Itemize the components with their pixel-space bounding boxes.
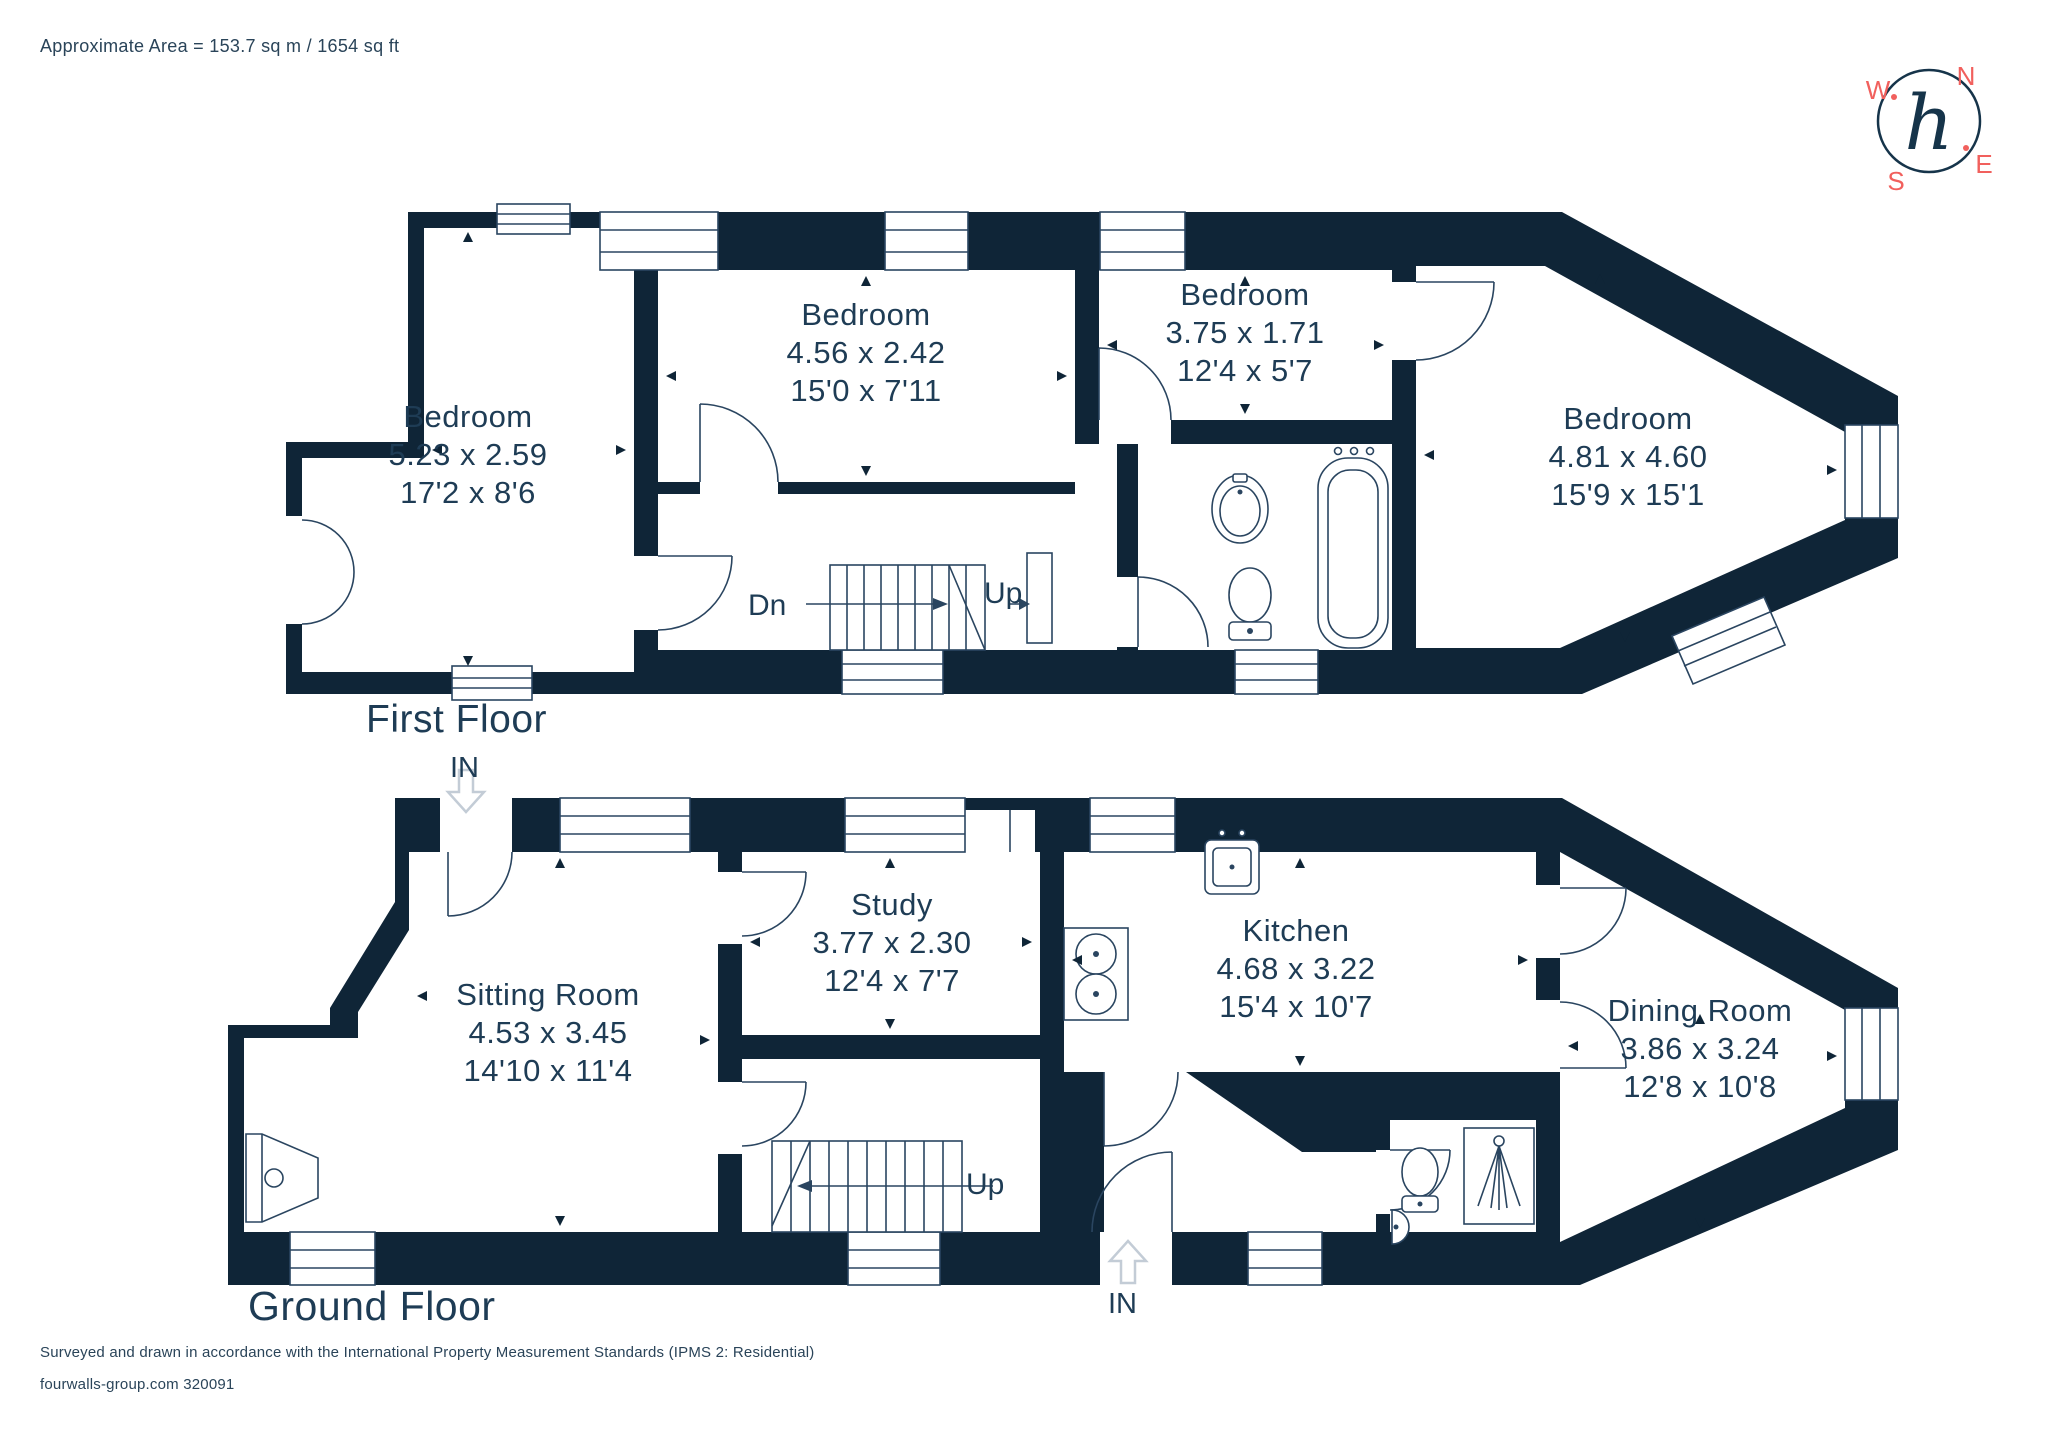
room-dim-imperial: 15'4 x 10'7 [1217,988,1376,1026]
room-dim-metric: 3.75 x 1.71 [1166,314,1325,352]
window-icon [1248,1232,1322,1285]
room-dim-imperial: 12'8 x 10'8 [1608,1068,1793,1106]
compass-monogram: h [1905,78,1954,167]
label-bedroom-right: Bedroom 4.81 x 4.60 15'9 x 15'1 [1549,400,1708,514]
window-icon [560,798,690,852]
room-name: Kitchen [1217,912,1376,950]
room-name: Bedroom [787,296,946,334]
footer-standards-line: Surveyed and drawn in accordance with th… [40,1344,815,1361]
label-bedroom-small: Bedroom 3.75 x 1.71 12'4 x 5'7 [1166,276,1325,390]
sink-icon [1212,474,1268,543]
window-icon [845,798,965,852]
room-dim-metric: 4.81 x 4.60 [1549,438,1708,476]
room-name: Bedroom [389,398,548,436]
label-sitting-room: Sitting Room 4.53 x 3.45 14'10 x 11'4 [456,976,639,1090]
stairs-up-label-ff: Up [984,577,1022,611]
entrance-in-label-bottom: IN [1108,1288,1137,1321]
label-kitchen: Kitchen 4.68 x 3.22 15'4 x 10'7 [1217,912,1376,1026]
window-icon [848,1232,940,1285]
kitchen-sink-icon [1205,830,1259,894]
bathtub-icon [1318,448,1388,649]
label-study: Study 3.77 x 2.30 12'4 x 7'7 [813,886,972,1000]
window-icon [1090,798,1175,852]
entrance-in-label-top: IN [450,752,479,785]
room-dim-metric: 3.86 x 3.24 [1608,1030,1793,1068]
window-icon [1845,425,1898,518]
window-icon [290,1232,375,1285]
window-icon [1235,650,1318,694]
compass: h N W E S [1866,61,1993,196]
label-bedroom-left: Bedroom 5.23 x 2.59 17'2 x 8'6 [389,398,548,512]
ground-floor-title: Ground Floor [248,1283,496,1330]
window-icon [885,212,968,270]
toilet-icon [1402,1148,1438,1212]
window-icon [842,650,943,694]
floorplan-drawing: h N W E S [0,0,2048,1443]
approximate-area-label: Approximate Area = 153.7 sq m / 1654 sq … [40,36,399,57]
room-corridor-ff [1075,444,1117,650]
stairs-up-label-gf: Up [966,1168,1004,1202]
floorplan-page: h N W E S Approximate Area = 153.7 sq m … [0,0,2048,1443]
room-dim-imperial: 12'4 x 7'7 [813,962,972,1000]
room-name: Study [813,886,972,924]
window-icon [600,212,718,270]
room-dim-metric: 4.56 x 2.42 [787,334,946,372]
room-name: Bedroom [1166,276,1325,314]
room-name: Bedroom [1549,400,1708,438]
compass-dot-w [1891,94,1897,100]
compass-n: N [1957,61,1976,91]
room-name: Sitting Room [456,976,639,1014]
window-icon [452,666,532,700]
window-icon [1100,212,1185,270]
window-icon [1845,1008,1898,1100]
room-dim-imperial: 12'4 x 5'7 [1166,352,1325,390]
room-dim-imperial: 15'0 x 7'11 [787,372,946,410]
compass-s: S [1887,166,1904,196]
room-dim-metric: 5.23 x 2.59 [389,436,548,474]
room-dim-metric: 4.53 x 3.45 [456,1014,639,1052]
staircase-gf [772,1141,993,1232]
room-dim-metric: 4.68 x 3.22 [1217,950,1376,988]
hob-icon [1064,928,1128,1020]
window-icon [497,204,570,234]
room-dim-imperial: 15'9 x 15'1 [1549,476,1708,514]
compass-e: E [1975,149,1992,179]
shower-icon [1464,1128,1534,1224]
compass-dot-e [1963,145,1969,151]
room-dim-imperial: 14'10 x 11'4 [456,1052,639,1090]
stairs-down-label: Dn [748,589,786,623]
room-dim-imperial: 17'2 x 8'6 [389,474,548,512]
room-name: Dining Room [1608,992,1793,1030]
compass-w: W [1866,75,1891,105]
toilet-icon [1229,568,1271,640]
first-floor-title: First Floor [366,698,547,742]
room-dim-metric: 3.77 x 2.30 [813,924,972,962]
label-dining-room: Dining Room 3.86 x 3.24 12'8 x 10'8 [1608,992,1793,1106]
label-bedroom-mid: Bedroom 4.56 x 2.42 15'0 x 7'11 [787,296,946,410]
footer-brand-line: fourwalls-group.com 320091 [40,1376,234,1393]
